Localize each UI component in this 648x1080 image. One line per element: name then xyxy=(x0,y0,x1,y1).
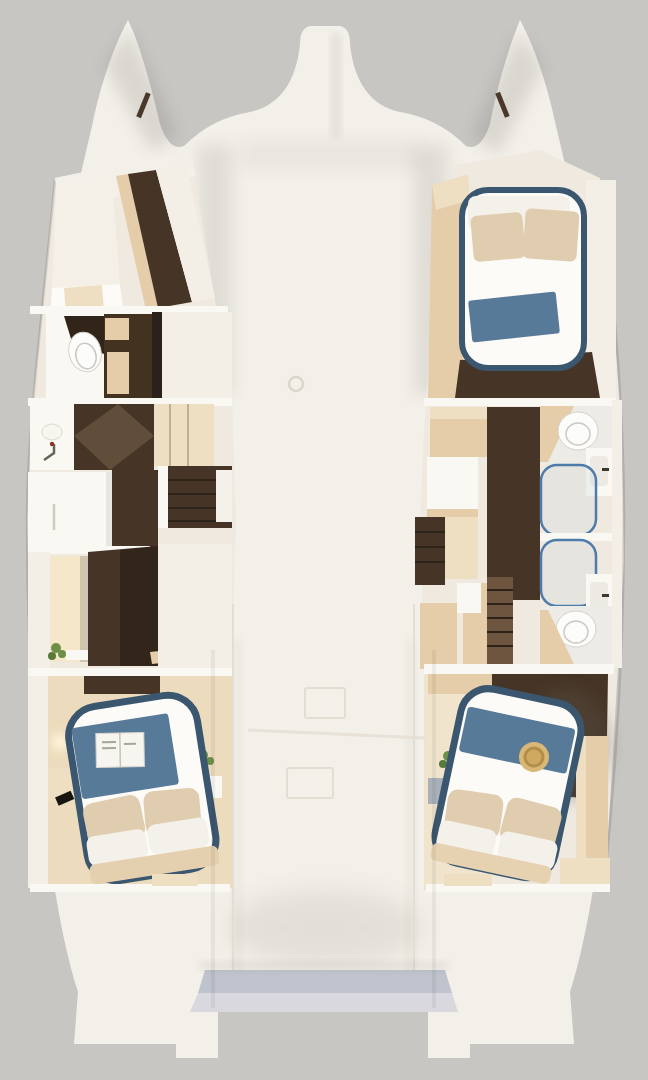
stbd-mid-outer-wall xyxy=(612,400,622,668)
port-bathroom xyxy=(30,306,232,398)
port-closet-shade xyxy=(80,556,88,662)
stbd-fwd-pillow-beige xyxy=(522,208,579,262)
magazine-line xyxy=(124,743,136,745)
plant-leaf xyxy=(48,652,56,660)
port-stairwell-wall xyxy=(158,466,168,528)
magazine-line xyxy=(102,741,116,743)
stbd-sink-fwd-faucet xyxy=(602,468,609,471)
stern-step-upper xyxy=(198,970,452,993)
port-stern-step xyxy=(176,1012,218,1058)
port-aft-wood-strip xyxy=(84,676,160,694)
port-hull-interior xyxy=(27,150,236,892)
stbd-fwd-bed xyxy=(462,190,584,368)
stern-step-lower xyxy=(190,993,458,1012)
catamaran-floorplan-render xyxy=(0,0,648,1080)
port-bath-cabinet-b xyxy=(107,352,129,394)
starboard-aft-cabin xyxy=(424,664,614,892)
port-sink-accent xyxy=(50,442,54,446)
port-aft-cabin xyxy=(28,668,232,892)
port-bath-cabinet-a xyxy=(105,318,129,340)
nacelle-seam-shadow xyxy=(332,34,340,138)
port-dresser xyxy=(28,472,114,546)
stbd-shower-fwd xyxy=(541,465,596,535)
stbd-mid-wall-top xyxy=(424,398,616,406)
port-vberth-platform xyxy=(52,178,120,288)
stbd-aft-wall-top xyxy=(424,664,614,674)
stbd-deck-companionway xyxy=(415,517,445,585)
port-aft-bed xyxy=(64,691,220,885)
starboard-forward-cabin xyxy=(428,175,616,398)
port-bath-doorway xyxy=(152,312,162,398)
plant-leaf xyxy=(58,650,66,658)
port-bath-outer-wall xyxy=(162,312,232,398)
deck-coaming-port xyxy=(152,874,198,886)
stbd-cabinet-white-rim xyxy=(427,509,478,517)
stbd-sink-aft-faucet xyxy=(602,594,609,597)
port-aft-leftwall xyxy=(28,676,48,888)
magazine-spine xyxy=(120,733,121,767)
port-sink-basin xyxy=(42,424,62,440)
stbd-cabinet-white xyxy=(427,457,478,517)
port-stairwell-door xyxy=(216,470,232,522)
stern-step-shadow xyxy=(200,962,448,970)
stbd-cabinet-b xyxy=(420,603,457,669)
stbd-cabinet-a-top xyxy=(430,407,487,419)
starboard-stern-step xyxy=(428,1012,470,1058)
starboard-hull-interior xyxy=(420,150,624,892)
nacelle-flare-shadow xyxy=(240,140,420,170)
port-midwood-floor xyxy=(112,470,158,548)
port-closet-floor-shadow xyxy=(120,546,158,666)
port-stairs-landing xyxy=(154,404,214,466)
port-aft-wall-top xyxy=(28,668,232,676)
deck-gutter-port xyxy=(233,640,241,1005)
port-closet-leftwall xyxy=(28,552,50,670)
cockpit-shadow xyxy=(227,890,423,966)
deck-coaming-starboard xyxy=(444,874,492,886)
stbd-aft-floor-corner xyxy=(560,858,610,888)
stbd-fwd-pillow-beige xyxy=(470,212,526,262)
stbd-box-edge xyxy=(481,583,487,613)
stbd-cabinet-c xyxy=(463,613,490,669)
port-aft-wall-bottom xyxy=(30,884,230,892)
magazine-line xyxy=(102,747,116,749)
port-closet-outer-wall xyxy=(158,544,232,668)
port-bed-magazine xyxy=(96,733,145,768)
